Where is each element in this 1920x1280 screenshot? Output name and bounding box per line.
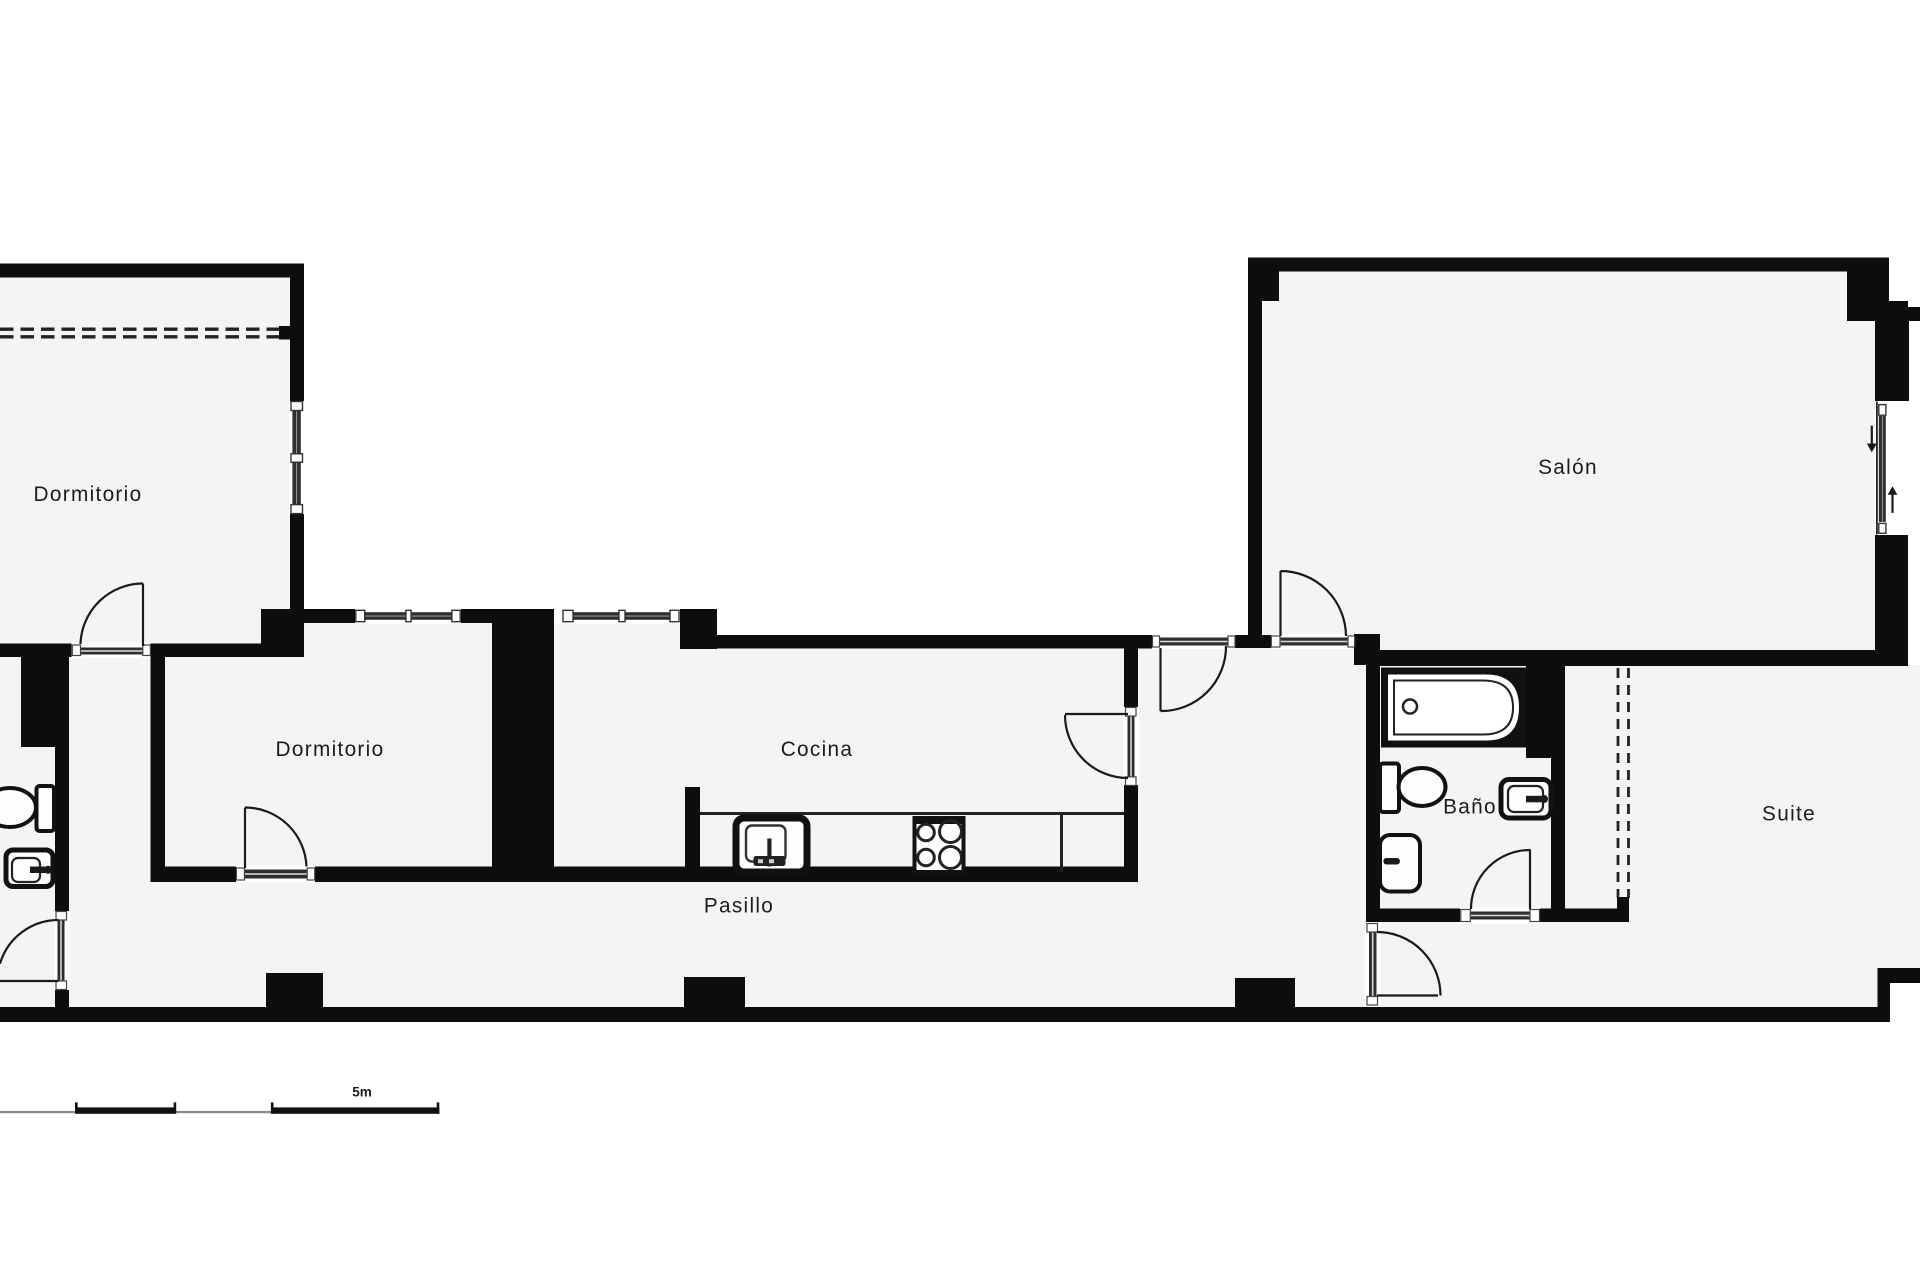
svg-text:5m: 5m [352, 1085, 372, 1100]
svg-text:Baño: Baño [1443, 796, 1497, 819]
svg-text:Salón: Salón [1538, 456, 1598, 479]
svg-text:Cocina: Cocina [781, 738, 854, 761]
svg-text:Suite: Suite [1762, 803, 1816, 826]
svg-text:Pasillo: Pasillo [704, 895, 774, 918]
svg-text:Dormitorio: Dormitorio [34, 483, 143, 506]
svg-text:Dormitorio: Dormitorio [276, 738, 385, 761]
